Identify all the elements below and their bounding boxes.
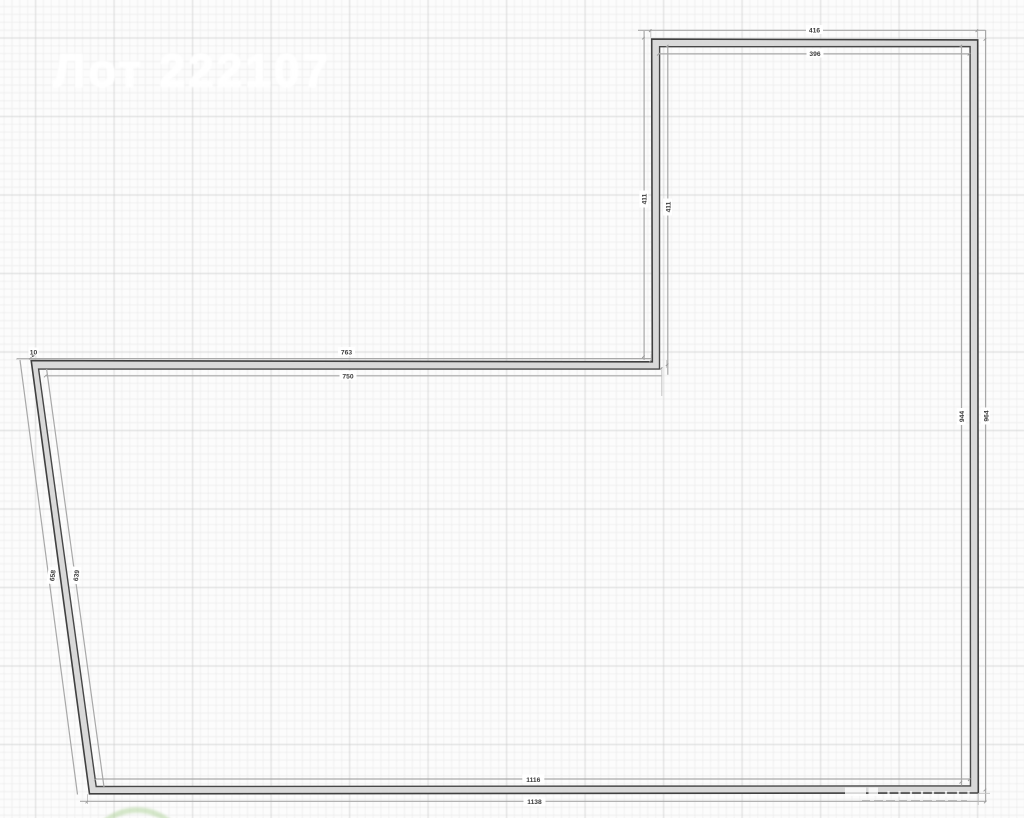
svg-text:1138: 1138 bbox=[527, 799, 542, 806]
svg-text:750: 750 bbox=[342, 373, 353, 380]
svg-text:411: 411 bbox=[642, 193, 649, 204]
svg-text:396: 396 bbox=[809, 51, 820, 58]
svg-text:10: 10 bbox=[30, 349, 38, 356]
svg-text:964: 964 bbox=[983, 410, 990, 421]
svg-text:944: 944 bbox=[959, 411, 966, 422]
svg-text:639: 639 bbox=[73, 569, 81, 581]
svg-text:658: 658 bbox=[49, 569, 57, 581]
svg-text:1116: 1116 bbox=[526, 777, 540, 784]
svg-text:416: 416 bbox=[809, 27, 820, 34]
svg-text:Лот 222107: Лот 222107 bbox=[53, 45, 331, 97]
svg-text:411: 411 bbox=[666, 201, 673, 212]
svg-text:763: 763 bbox=[341, 349, 352, 356]
